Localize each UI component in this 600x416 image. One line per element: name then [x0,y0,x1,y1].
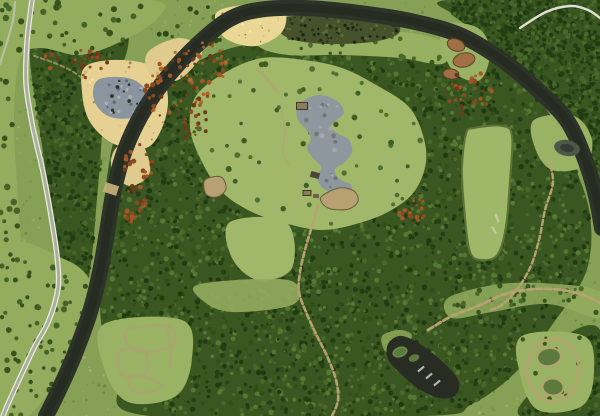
building-4 [313,194,319,198]
building-3 [303,191,311,196]
building-1 [297,103,308,110]
ring-island-south [542,378,564,397]
map-viewport[interactable] [0,0,600,416]
dirt-pad [204,176,226,197]
terrain-map-canvas [0,0,600,416]
